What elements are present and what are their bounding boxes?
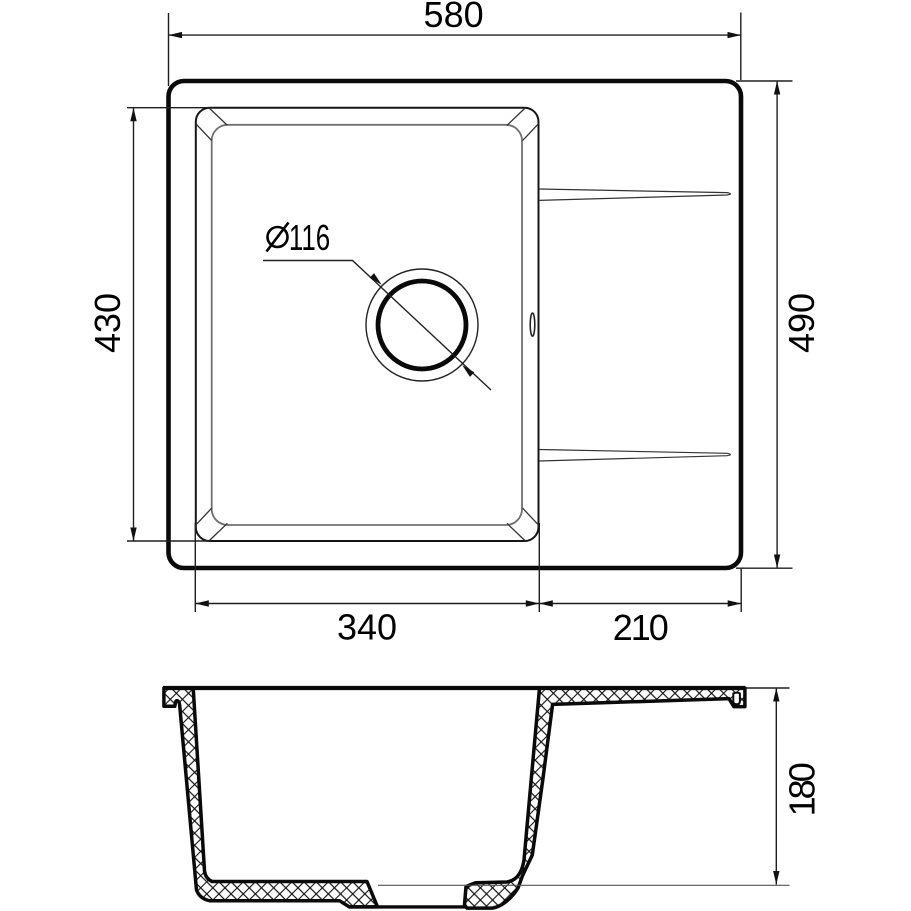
svg-text:490: 490 [781, 293, 822, 353]
svg-text:430: 430 [87, 293, 128, 353]
svg-text:180: 180 [782, 763, 823, 816]
svg-text:580: 580 [424, 0, 484, 35]
svg-text:340: 340 [337, 607, 397, 648]
svg-text:116: 116 [289, 218, 330, 258]
svg-text:210: 210 [613, 607, 668, 648]
